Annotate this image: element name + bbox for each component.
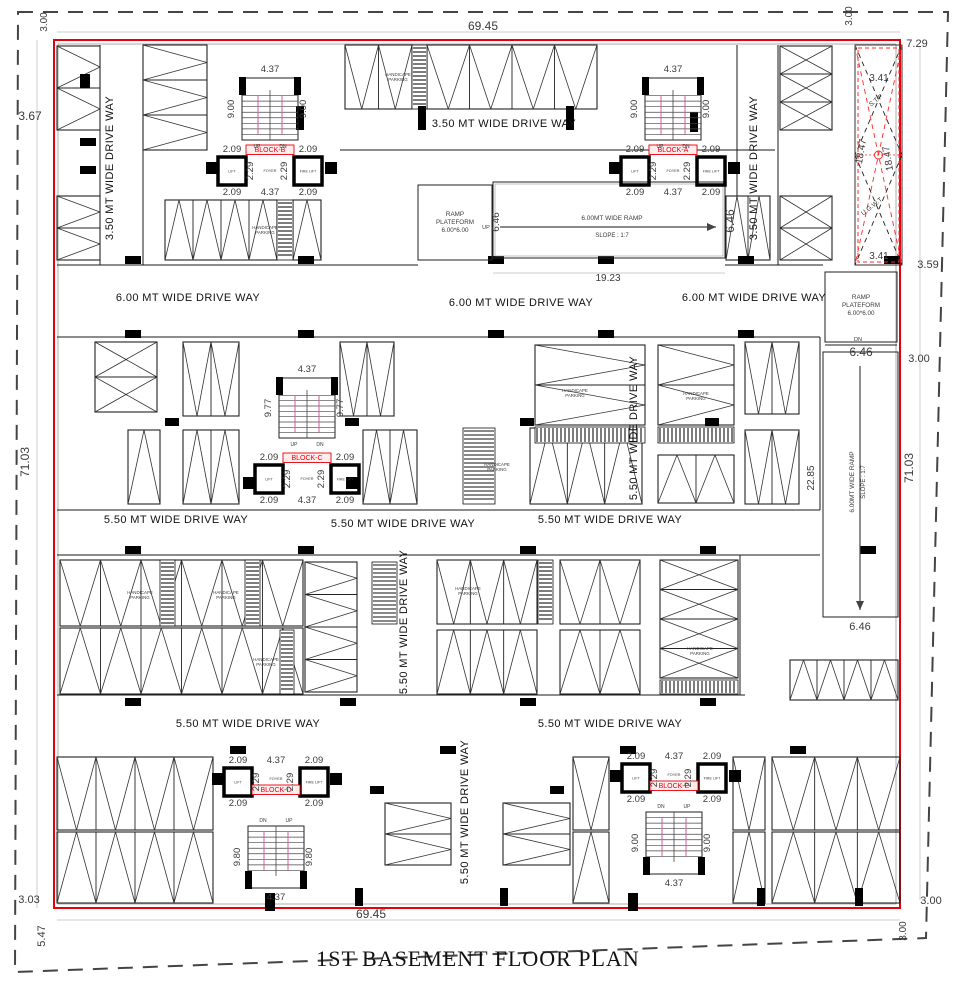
stall-marking <box>759 196 770 260</box>
stall-marking <box>737 196 748 260</box>
dim-229: 2.29 <box>649 769 660 788</box>
stall-marking <box>121 628 141 694</box>
stall-marking <box>504 560 521 624</box>
handicap-parking-label: PARKING <box>565 393 585 398</box>
column-marker <box>298 256 314 264</box>
stall-marking <box>793 757 814 830</box>
stall-marking <box>844 660 858 700</box>
stall-marking <box>362 45 379 109</box>
column-marker <box>206 162 218 174</box>
stair-dn-label: DN <box>316 442 324 448</box>
stall-marking <box>141 628 161 694</box>
dimension-label: 3.00 <box>898 921 909 941</box>
lift-label: LIFT <box>632 777 640 781</box>
stall-marking <box>560 630 580 694</box>
stall-marking <box>143 45 207 63</box>
column-marker <box>700 698 716 706</box>
stall-marking <box>182 560 202 626</box>
handicap-parking-label: PARKING <box>458 591 478 596</box>
ramp-arrowhead <box>707 223 716 231</box>
stall-marking <box>677 455 696 503</box>
stall-marking <box>235 200 249 260</box>
stall-marking <box>772 342 786 414</box>
dim-209: 2.09 <box>305 798 324 809</box>
column-marker <box>598 330 614 338</box>
stall-marking <box>305 578 357 594</box>
dim-209: 2.09 <box>702 187 721 198</box>
stall-marking <box>404 430 418 504</box>
column-marker <box>125 546 141 554</box>
stall-marking <box>174 757 194 830</box>
stall-marking <box>658 405 734 425</box>
stall-marking <box>580 630 600 694</box>
stall-marking <box>745 430 759 504</box>
dimension-label: 3.03 <box>18 894 39 906</box>
stall-marking <box>745 342 759 414</box>
ramp-platform-text: 6.00*6.00 <box>848 310 875 317</box>
stair-corner-post <box>331 377 338 395</box>
dim-209: 2.09 <box>627 794 646 805</box>
stall-marking <box>555 45 576 109</box>
stall-marking <box>786 342 800 414</box>
column-marker <box>165 418 179 426</box>
stall-marking <box>221 200 235 260</box>
stall-marking <box>194 832 214 903</box>
dimension-label: 3.67 <box>18 109 42 123</box>
stall-marking <box>533 45 554 109</box>
foyer-label: FOYER <box>269 777 282 781</box>
driveway-label: 5.50 MT WIDE DRIVE WAY <box>538 514 683 526</box>
lift-label: LIFT <box>228 170 236 174</box>
stair-dn-label: DN <box>682 144 690 150</box>
parking-stall-group <box>772 757 900 830</box>
hatch-strip <box>245 560 260 626</box>
stall-marking <box>174 832 194 903</box>
stall-marking <box>620 630 640 694</box>
stall-marking <box>772 832 793 903</box>
column-marker <box>230 746 246 754</box>
parking-stall-group <box>772 832 900 903</box>
column-marker <box>298 546 314 554</box>
stair-dn-label: DN <box>259 818 267 824</box>
fire-lift-label: FIRE LIFT <box>704 777 721 781</box>
stair-dn-label: DN <box>279 144 287 150</box>
dimension-label: 71.03 <box>18 447 32 477</box>
column-marker <box>738 330 754 338</box>
dim-437: 4.37 <box>267 755 286 766</box>
dimension-label: 3.41 <box>869 251 889 262</box>
fire-lift-label: FIRE LIFT <box>703 170 720 174</box>
driveway-label: 3.50 MT WIDE DRIVE WAY <box>104 96 116 241</box>
dim-437: 4.37 <box>298 495 317 506</box>
dimension-label: 22.85 <box>806 465 817 490</box>
stall-marking <box>305 627 357 643</box>
column-marker <box>125 330 141 338</box>
dim-209: 2.09 <box>223 144 242 155</box>
stall-marking <box>871 660 885 700</box>
stall-marking <box>305 676 357 692</box>
driveway-label: 5.50 MT WIDE DRIVE WAY <box>104 514 249 526</box>
stall-marking <box>211 430 225 504</box>
stall-marking <box>658 455 677 503</box>
dim-209: 2.09 <box>260 495 279 506</box>
stall-marking <box>503 803 570 819</box>
stall-marking <box>305 611 357 627</box>
dim-side: 9.00 <box>629 100 640 119</box>
ramp-platform-text: 6.00*6.00 <box>442 227 469 234</box>
ramp-up-label: UP <box>482 225 490 231</box>
stall-marking <box>60 628 80 694</box>
stall-marking <box>211 342 225 416</box>
stall-marking <box>57 88 100 109</box>
stall-marking <box>202 628 222 694</box>
dim-229: 2.29 <box>245 162 256 181</box>
stall-marking <box>385 819 451 835</box>
column-marker <box>609 162 621 174</box>
stall-marking <box>135 832 155 903</box>
dim-side: 9.00 <box>702 834 713 853</box>
hatch-strip <box>280 630 294 694</box>
stair-corner-post <box>300 871 307 889</box>
dim-437: 4.37 <box>261 64 280 75</box>
stall-marking <box>345 45 362 109</box>
stall-marking <box>363 430 377 504</box>
dim-side: 9.80 <box>304 848 315 867</box>
dim-229: 2.29 <box>285 773 296 792</box>
column-marker <box>440 746 456 754</box>
dim-209: 2.09 <box>702 144 721 155</box>
stall-marking <box>135 757 155 830</box>
stall-marking <box>197 342 211 416</box>
stall-marking <box>733 757 749 830</box>
stall-marking <box>307 200 321 260</box>
column-marker <box>738 256 754 264</box>
parking-stall-group <box>733 757 765 830</box>
column-marker <box>550 786 564 794</box>
stall-marking <box>815 757 836 830</box>
stall-marking <box>817 660 831 700</box>
lift-label: LIFT <box>234 781 242 785</box>
stall-marking <box>879 757 900 830</box>
stall-marking <box>354 342 368 416</box>
dimension-label: 18.47 <box>881 145 896 172</box>
dimension-label: 3.59 <box>917 259 938 271</box>
dim-437: 4.37 <box>664 187 683 198</box>
dim-229: 2.29 <box>683 769 694 788</box>
stall-marking <box>573 757 591 830</box>
ramp-platform-text: PLATEFORM <box>436 219 474 226</box>
stair-corner-post <box>642 77 649 95</box>
dim-437: 4.37 <box>267 892 286 903</box>
stall-marking <box>305 660 357 676</box>
stall-marking <box>658 365 734 385</box>
driveway-label: 5.50 MT WIDE DRIVE WAY <box>459 740 471 885</box>
ramp-platform-text: PLATEFORM <box>842 302 880 309</box>
dim-side: 9.80 <box>232 848 243 867</box>
column-marker <box>520 418 534 426</box>
stall-marking <box>591 832 609 903</box>
column-marker <box>860 546 876 554</box>
stall-marking <box>57 228 100 244</box>
ramp-label: 6.00MT WIDE RAMP <box>849 451 856 512</box>
dimension-label: 18.47 <box>854 138 869 165</box>
handicap-parking-label: PARKING <box>686 396 706 401</box>
block-name-label: BLOCK-C <box>291 455 322 462</box>
stall-marking <box>437 560 454 624</box>
stall-marking <box>197 430 211 504</box>
stall-marking <box>503 850 570 866</box>
column-marker <box>500 888 508 906</box>
dim-209: 2.09 <box>229 755 248 766</box>
stair-dn-label: DN <box>657 804 665 810</box>
stall-marking <box>144 430 160 504</box>
handicap-parking-label: PARKING <box>256 662 276 667</box>
stall-marking <box>80 628 100 694</box>
stall-marking <box>804 660 818 700</box>
stall-marking <box>96 757 116 830</box>
stall-marking <box>143 98 207 116</box>
stair-corner-post <box>294 77 301 95</box>
driveway-label: 6.00 MT WIDE DRIVE WAY <box>116 292 261 304</box>
stall-marking <box>60 560 80 626</box>
dim-side: 9.77 <box>335 399 346 418</box>
stall-marking <box>57 109 100 130</box>
dim-229: 2.29 <box>282 470 293 489</box>
column-marker <box>418 106 426 130</box>
column-marker <box>488 330 504 338</box>
column-marker <box>520 546 536 554</box>
stall-marking <box>283 560 303 626</box>
column-marker <box>125 698 141 706</box>
stall-marking <box>512 45 533 109</box>
handicap-parking-label: PARKING <box>388 77 408 82</box>
driveway-label: 5.50 MT WIDE DRIVE WAY <box>398 550 410 695</box>
stall-marking <box>57 832 77 903</box>
ramp-dn-label: DN <box>854 337 862 343</box>
driveway-label: 5.50 MT WIDE DRIVE WAY <box>538 718 683 730</box>
stall-marking <box>57 67 100 88</box>
stall-marking <box>193 200 207 260</box>
handicap-parking-label: PARKING <box>690 651 710 656</box>
stall-marking <box>790 660 804 700</box>
stall-marking <box>658 345 734 365</box>
stall-marking <box>487 560 504 624</box>
column-marker <box>325 162 337 174</box>
stall-marking <box>470 630 487 694</box>
stall-marking <box>836 757 857 830</box>
stall-marking <box>749 757 765 830</box>
driveway-label: 6.00 MT WIDE DRIVE WAY <box>682 292 827 304</box>
handicap-parking-label: PARKING <box>487 467 507 472</box>
dimension-label: 19.23 <box>595 273 620 284</box>
column-marker <box>330 773 342 785</box>
dimension-label: 3.41 <box>869 73 889 84</box>
stall-marking <box>207 200 221 260</box>
handicap-parking-label: PARKING <box>255 230 275 235</box>
stall-marking <box>448 45 469 109</box>
stall-marking <box>305 562 357 578</box>
stall-marking <box>57 212 100 228</box>
foyer-label: FOYER <box>667 773 680 777</box>
lift-label: LIFT <box>265 478 273 482</box>
column-marker <box>355 888 363 906</box>
stair-up-label: UP <box>254 144 262 150</box>
column-marker <box>728 162 740 174</box>
stall-marking <box>385 850 451 866</box>
stall-marking <box>437 630 454 694</box>
stall-marking <box>580 560 600 624</box>
stall-marking <box>879 832 900 903</box>
dim-229: 2.29 <box>316 470 327 489</box>
stall-marking <box>225 342 239 416</box>
stair-up-label: UP <box>657 144 665 150</box>
parking-stall-group <box>128 430 160 504</box>
handicap-parking-label: PARKING <box>216 595 236 600</box>
column-marker <box>598 256 614 264</box>
stall-marking <box>101 628 121 694</box>
stall-marking <box>155 757 175 830</box>
stair-corner-post <box>239 77 246 95</box>
stall-marking <box>143 80 207 98</box>
ramp-platform-text: RAMP <box>446 211 464 218</box>
foyer-label: FOYER <box>666 169 679 173</box>
stall-marking <box>786 430 800 504</box>
stall-marking <box>520 560 537 624</box>
dim-437: 4.37 <box>261 187 280 198</box>
stall-marking <box>715 455 734 503</box>
column-marker <box>705 418 719 426</box>
stall-marking <box>57 757 77 830</box>
dim-437: 4.37 <box>664 64 683 75</box>
stall-marking <box>77 832 97 903</box>
ramp-label: 6.00MT WIDE RAMP <box>581 215 642 222</box>
column-marker <box>729 770 741 782</box>
stair-up-label: UP <box>684 804 692 810</box>
column-marker <box>520 698 536 706</box>
stall-marking <box>520 630 537 694</box>
dimension-label: 71.03 <box>902 453 916 483</box>
stall-marking <box>560 560 580 624</box>
stall-marking <box>385 803 451 819</box>
stall-marking <box>182 628 202 694</box>
stall-marking <box>600 630 620 694</box>
stall-marking <box>80 560 100 626</box>
stall-marking <box>194 757 214 830</box>
dim-side: 9.00 <box>630 834 641 853</box>
dimension-label: 3.00 <box>39 12 50 32</box>
dim-side: 9.00 <box>298 100 309 119</box>
stair-corner-post <box>697 77 704 95</box>
stall-marking <box>367 342 381 416</box>
stall-marking <box>293 200 307 260</box>
stall-marking <box>491 45 512 109</box>
dimension-label: 6.46 <box>849 621 870 633</box>
stall-marking <box>591 757 609 830</box>
column-marker <box>80 138 96 146</box>
dimension-label: 3.00 <box>920 895 941 907</box>
ramp-platform-text: RAMP <box>852 294 870 301</box>
parking-stall-group <box>437 560 537 624</box>
stair-up-label: UP <box>291 442 299 448</box>
stall-marking <box>77 757 97 830</box>
stall-marking <box>759 430 773 504</box>
driveway-label: 3.50 MT WIDE DRIVE WAY <box>748 96 760 241</box>
stall-marking <box>101 560 121 626</box>
stall-marking <box>96 832 116 903</box>
stall-marking <box>161 628 181 694</box>
dim-437: 4.37 <box>665 878 684 889</box>
stall-marking <box>305 595 357 611</box>
dimension-label: 3.00 <box>908 353 929 365</box>
stall-marking <box>793 832 814 903</box>
stall-marking <box>183 342 197 416</box>
parking-stall-group <box>293 200 321 260</box>
dim-229: 2.29 <box>682 162 693 181</box>
column-marker <box>80 74 90 88</box>
stair-corner-post <box>276 377 283 395</box>
dim-209: 2.09 <box>703 751 722 762</box>
dimension-label: 3.00 <box>844 6 855 26</box>
stall-marking <box>503 819 570 835</box>
dim-209: 2.09 <box>627 751 646 762</box>
dim-side: 9.00 <box>701 100 712 119</box>
stall-marking <box>143 133 207 151</box>
driveway-label: 5.50 MT WIDE DRIVE WAY <box>331 518 476 530</box>
stall-marking <box>772 757 793 830</box>
column-marker <box>610 770 622 782</box>
column-marker <box>243 477 255 489</box>
column-marker <box>212 773 224 785</box>
lift-label: LIFT <box>631 170 639 174</box>
stall-marking <box>183 430 197 504</box>
stall-marking <box>305 643 357 659</box>
stall-marking <box>470 45 491 109</box>
stall-marking <box>128 430 144 504</box>
stall-marking <box>733 832 749 903</box>
dim-209: 2.09 <box>299 144 318 155</box>
stair-corner-post <box>698 857 705 875</box>
fire-lift-label: FIRE LIFT <box>306 781 323 785</box>
hatch-strip <box>412 45 427 109</box>
stall-marking <box>427 45 448 109</box>
stall-marking <box>503 834 570 850</box>
ramp-arrowhead <box>856 601 864 610</box>
dim-209: 2.09 <box>703 794 722 805</box>
dimension-label: 6.46 <box>723 209 737 233</box>
dim-209: 2.09 <box>223 187 242 198</box>
dimension-label: 6.46 <box>491 212 502 232</box>
column-marker <box>628 893 638 911</box>
parking-stall-group <box>573 832 609 903</box>
fire-lift-label: FIRE LIFT <box>300 170 317 174</box>
stall-marking <box>504 630 521 694</box>
basement-floor-plan: S.T.PU.G.W.TRAMPPLATEFORM6.00*6.00UP6.00… <box>0 0 956 988</box>
stall-marking <box>600 560 620 624</box>
foyer-label: FOYER <box>263 169 276 173</box>
stall-marking <box>116 832 136 903</box>
driveway-label: 5.50 MT WIDE DRIVE WAY <box>628 356 640 501</box>
ramp-slope-label: SLOPE : 1:7 <box>595 233 629 239</box>
hatch-strip <box>160 560 175 626</box>
stall-marking <box>696 455 715 503</box>
dim-209: 2.09 <box>336 495 355 506</box>
parking-stall-group <box>143 45 207 150</box>
plan-title: 1ST BASEMENT FLOOR PLAN <box>0 946 956 972</box>
stall-marking <box>772 430 786 504</box>
parking-stall-group <box>437 630 537 694</box>
dim-209: 2.09 <box>229 798 248 809</box>
dim-229: 2.29 <box>279 162 290 181</box>
